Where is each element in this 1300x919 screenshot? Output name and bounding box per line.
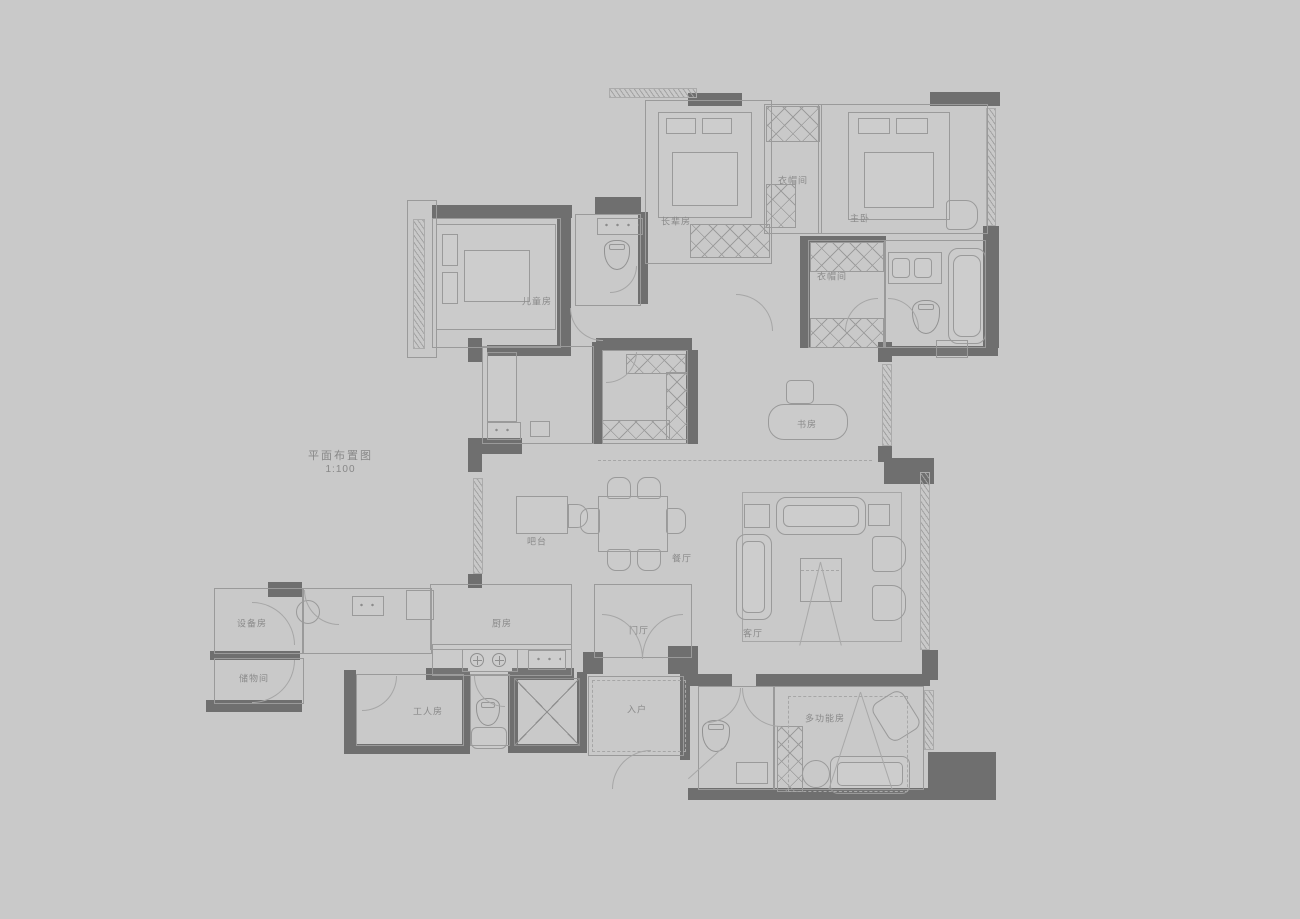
room-label-equipment: 设备房 xyxy=(237,617,267,630)
plan-scale: 1:100 xyxy=(308,463,373,476)
room-label-study: 书房 xyxy=(797,418,817,431)
bed-blanket xyxy=(464,250,530,302)
room-label-master: 主卧 xyxy=(850,212,870,225)
sofa-cushion xyxy=(837,762,903,786)
wall-segment xyxy=(756,674,930,686)
faucet-dots xyxy=(599,220,639,230)
appliance xyxy=(406,590,434,620)
entry-mat xyxy=(592,680,686,752)
faucet-dots xyxy=(354,600,380,610)
armchair xyxy=(872,536,906,572)
window-band xyxy=(882,364,892,446)
dining-chair xyxy=(666,508,686,534)
wall-segment xyxy=(468,452,482,472)
window-band xyxy=(473,478,483,574)
pillow xyxy=(896,118,928,134)
stool xyxy=(802,760,830,788)
room-label-foyer: 门厅 xyxy=(629,624,649,637)
room-label-kitchen: 厨房 xyxy=(492,617,512,630)
wall-segment xyxy=(596,338,692,350)
faucet-dots xyxy=(531,654,561,664)
bar-counter xyxy=(516,496,568,534)
wall-segment xyxy=(928,752,996,800)
plan-title-block: 平面布置图 1:100 xyxy=(308,450,373,476)
armchair xyxy=(872,585,906,621)
pillow xyxy=(702,118,732,134)
side-table xyxy=(868,504,890,526)
room-label-cloakroom2: 衣帽间 xyxy=(817,270,847,283)
sofa-cushion xyxy=(742,541,765,613)
window-band xyxy=(920,472,930,650)
plan-title: 平面布置图 xyxy=(308,450,373,462)
room-label-worker: 工人房 xyxy=(413,705,443,718)
room-label-bar: 吧台 xyxy=(527,535,547,548)
dining-chair xyxy=(637,477,661,499)
wall-segment xyxy=(595,197,641,214)
bathtub-small xyxy=(471,727,507,749)
wardrobe-hatch xyxy=(602,420,670,440)
wardrobe-hatch xyxy=(766,106,820,142)
basin xyxy=(892,258,910,278)
side-table xyxy=(744,504,770,528)
dining-table xyxy=(598,496,668,552)
sofa-cushion xyxy=(783,505,859,527)
basin xyxy=(530,421,550,437)
pillow xyxy=(666,118,696,134)
bar-stool xyxy=(568,504,588,528)
room-label-elder: 长辈房 xyxy=(661,215,691,228)
wall-segment xyxy=(432,205,572,218)
pillow xyxy=(442,272,458,304)
room-label-dining: 餐厅 xyxy=(672,552,692,565)
wall-segment xyxy=(688,674,732,686)
elevator-shaft xyxy=(514,678,580,746)
room-label-living: 客厅 xyxy=(743,627,763,640)
wardrobe-hatch xyxy=(690,224,770,258)
door-arc xyxy=(736,294,773,331)
ceiling-dash-line xyxy=(598,460,872,461)
room-label-cloakroom1: 衣帽间 xyxy=(778,174,808,187)
floor-plan-canvas: 长辈房 衣帽间 主卧 衣帽间 儿童房 书房 吧台 餐厅 客厅 设备房 储物间 厨… xyxy=(0,0,1300,919)
pillow xyxy=(442,234,458,266)
basin xyxy=(914,258,932,278)
chair xyxy=(786,380,814,404)
armchair xyxy=(946,200,978,230)
dining-chair xyxy=(637,549,661,571)
sink-counter xyxy=(936,340,968,358)
window-band xyxy=(924,690,934,750)
wall-segment xyxy=(344,670,356,752)
bathtub-inner xyxy=(953,255,981,337)
pillow xyxy=(858,118,890,134)
sink-counter xyxy=(736,762,768,784)
bed-blanket xyxy=(864,152,934,208)
room-label-entry: 入户 xyxy=(627,703,647,716)
room-label-storage: 储物间 xyxy=(239,672,269,685)
room-label-multifunction: 多功能房 xyxy=(805,712,845,725)
burner-icon xyxy=(492,653,506,667)
faucet-dots xyxy=(489,425,517,435)
room-label-children: 儿童房 xyxy=(522,295,552,308)
burner-icon xyxy=(470,653,484,667)
window-band xyxy=(609,88,697,98)
wardrobe-hatch xyxy=(810,242,884,272)
bed-blanket xyxy=(672,152,738,206)
coffee-table-line xyxy=(801,570,839,571)
dining-chair xyxy=(607,549,631,571)
wardrobe-hatch xyxy=(766,184,796,228)
dining-chair xyxy=(607,477,631,499)
door-arc xyxy=(570,308,603,341)
cabinet xyxy=(487,352,517,422)
